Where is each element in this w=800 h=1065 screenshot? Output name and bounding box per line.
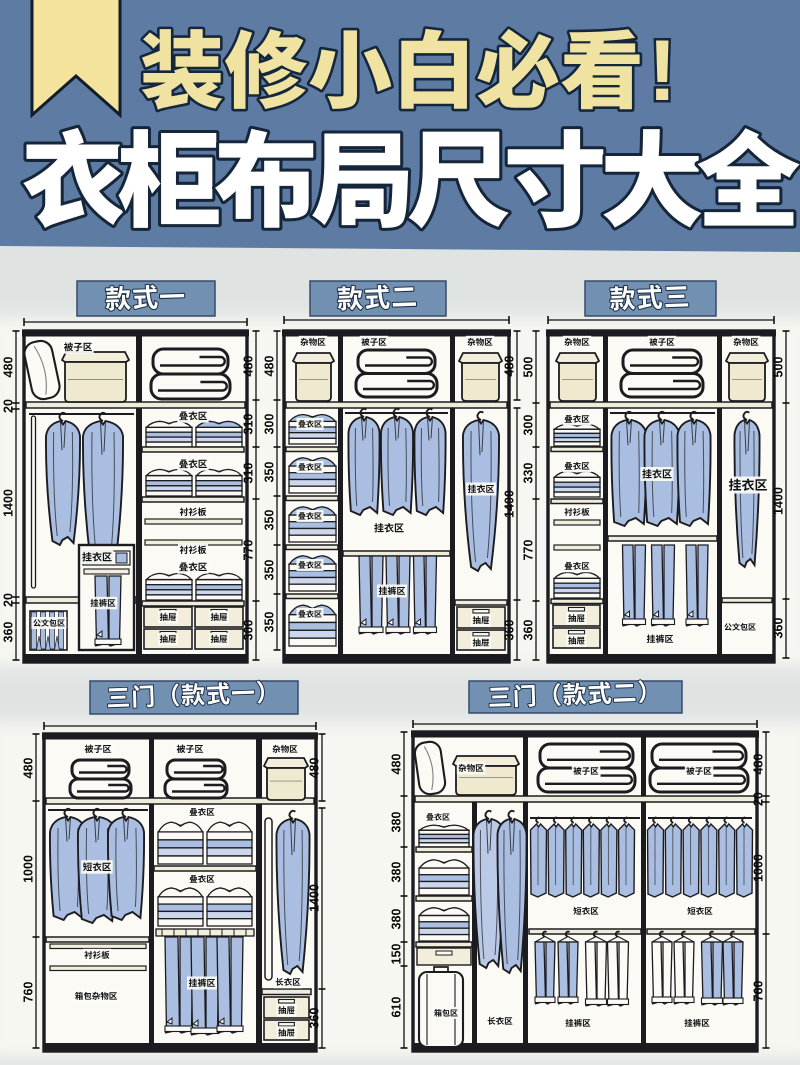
svg-text:20: 20 [2,399,16,413]
svg-text:480: 480 [242,356,256,377]
svg-text:360: 360 [522,620,536,641]
svg-text:500: 500 [522,357,536,378]
svg-text:1400: 1400 [2,489,16,517]
svg-text:610: 610 [390,997,404,1018]
svg-text:380: 380 [390,909,404,930]
svg-text:380: 380 [390,812,404,833]
svg-text:300: 300 [522,415,536,436]
svg-text:20: 20 [752,792,766,806]
svg-text:350: 350 [263,560,277,581]
svg-text:760: 760 [22,982,36,1003]
svg-text:480: 480 [263,356,277,377]
svg-text:1400: 1400 [503,490,517,518]
svg-text:480: 480 [2,357,16,378]
svg-text:380: 380 [390,862,404,883]
svg-text:480: 480 [390,754,404,775]
svg-text:350: 350 [263,612,277,633]
svg-text:480: 480 [503,356,517,377]
svg-text:360: 360 [503,620,517,641]
svg-text:330: 330 [522,463,536,484]
svg-text:770: 770 [522,540,536,561]
svg-text:1000: 1000 [752,854,766,882]
svg-text:150: 150 [390,944,404,965]
svg-text:480: 480 [308,758,322,779]
svg-text:360: 360 [2,622,16,643]
svg-text:360: 360 [308,1008,322,1029]
svg-text:1400: 1400 [772,487,786,515]
svg-text:770: 770 [242,540,256,561]
svg-text:310: 310 [242,414,256,435]
svg-text:!: ! [648,23,677,119]
svg-text:360: 360 [772,618,786,639]
svg-text:350: 350 [263,510,277,531]
svg-text:1000: 1000 [22,855,36,883]
svg-text:350: 350 [263,462,277,483]
svg-text:500: 500 [772,357,786,378]
svg-text:300: 300 [242,620,256,641]
svg-text:760: 760 [752,981,766,1002]
svg-text:20: 20 [2,593,16,607]
svg-text:310: 310 [242,463,256,484]
svg-text:480: 480 [752,754,766,775]
svg-text:1400: 1400 [308,884,322,912]
svg-text:480: 480 [22,758,36,779]
svg-text:300: 300 [263,414,277,435]
